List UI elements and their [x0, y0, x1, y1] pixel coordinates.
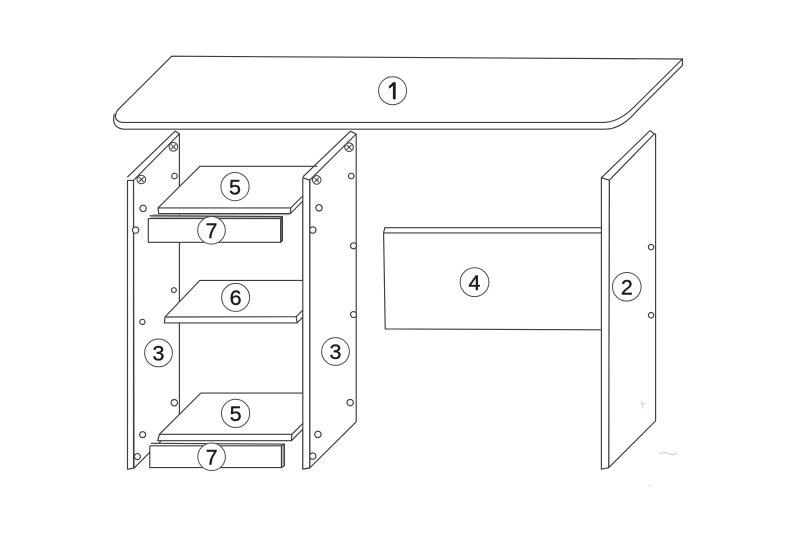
svg-text:2: 2 [621, 276, 633, 300]
svg-text:3: 3 [153, 342, 165, 366]
svg-text:7: 7 [206, 445, 218, 469]
svg-text:7: 7 [206, 219, 218, 243]
svg-text:4: 4 [469, 271, 481, 295]
svg-text:5: 5 [229, 175, 241, 199]
svg-text:6: 6 [230, 286, 242, 310]
svg-text:5: 5 [230, 402, 242, 426]
svg-text:3: 3 [330, 340, 342, 364]
